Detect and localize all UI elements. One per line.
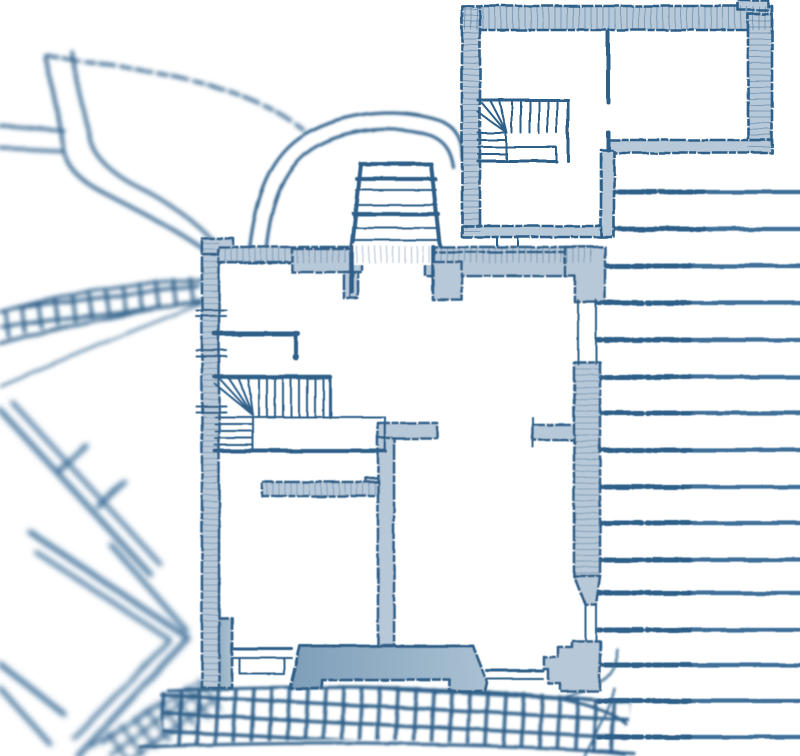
diagonal-wall-inner	[12, 402, 160, 564]
east-partition-stub	[533, 425, 574, 440]
site-plan-drawing	[0, 0, 800, 756]
main-winder-stair	[215, 377, 385, 451]
east-wall	[574, 362, 600, 576]
recessed-entry	[240, 658, 284, 674]
hall-partition-top	[378, 423, 437, 438]
terrace-steps	[598, 192, 800, 737]
wall-stub	[98, 482, 124, 506]
floor-plan-canvas	[0, 0, 800, 756]
upper-annex	[462, 0, 772, 253]
east-wall-taper	[574, 576, 600, 604]
left-path-line	[0, 126, 64, 131]
left-path-line	[0, 148, 62, 151]
vestibule-wall	[433, 262, 462, 300]
diamond-room-edge	[112, 546, 186, 630]
south-bay	[290, 646, 487, 691]
entry-stair	[352, 164, 440, 248]
east-opening-jambs	[578, 300, 596, 364]
annex-north-wall	[462, 6, 772, 30]
main-building	[196, 238, 605, 691]
annex-winder-stair	[478, 100, 568, 161]
annex-east-wall	[748, 14, 772, 152]
hall-partition-leg	[378, 438, 394, 645]
room-divider-wall	[262, 482, 378, 496]
diagonal-wall	[0, 410, 150, 574]
east-wall-thin	[585, 604, 596, 645]
annex-inner-east-wall	[601, 150, 614, 237]
northeast-corner	[565, 247, 605, 302]
entry-opening	[353, 244, 432, 265]
annex-southeast-wall	[608, 140, 772, 153]
annex-west-wall	[462, 6, 480, 236]
curved-path-edge-outer	[46, 57, 205, 250]
annex-south-wall	[462, 226, 601, 237]
entry-arch-path	[249, 113, 463, 254]
wall-end-blob	[293, 354, 300, 361]
west-wall	[202, 240, 219, 688]
lower-wall	[0, 664, 64, 714]
annex-corner-bump	[738, 0, 768, 10]
hatched-band	[162, 713, 628, 729]
southeast-pier	[544, 641, 600, 691]
